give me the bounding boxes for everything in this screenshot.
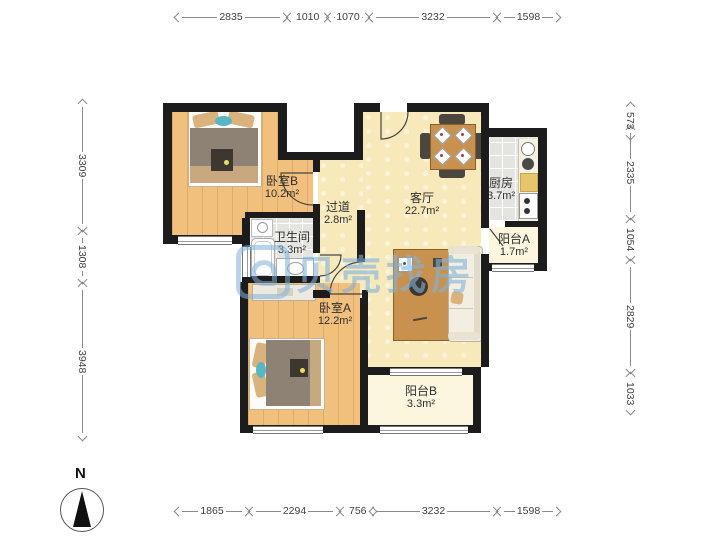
wall [357,210,365,262]
sliding-door [390,368,462,376]
dim-left-0: 3309 [75,100,89,231]
dim-line [308,511,333,512]
wall [407,103,481,112]
arrow-left-icon [174,506,184,516]
dim-bottom-1: 2294 [249,504,340,518]
room-label-living: 客厅 22.7m² [405,191,439,219]
table-item [433,258,442,267]
dim-right-3: 2829 [623,260,637,373]
dim-line [82,179,83,224]
dim-right-4: 1033 [623,373,637,414]
dim-value: 3232 [419,11,446,23]
sofa-pillow [450,291,464,305]
dim-right-0: 573 [623,103,637,126]
arrow-right-icon [552,12,562,22]
dim-bottom-0: 1865 [175,504,249,518]
dim-left-1: 1308 [75,231,89,283]
bedA-bed-foot [310,340,321,406]
stove-burner [524,208,530,214]
arrow-left-icon [496,506,506,516]
dim-line [245,17,280,18]
dim-value: 1010 [294,11,321,23]
arrow-up-icon [625,125,635,135]
wall [163,103,172,244]
arrow-up-icon [625,259,635,269]
room-label-balconyB: 阳台B 3.3m² [405,384,437,412]
dim-bottom-2: 756 [340,504,370,518]
dim-line [447,17,490,18]
room-area: 2.8m² [324,215,352,228]
wall [363,103,380,112]
plate-dot [461,154,464,157]
plate-dot [440,133,443,136]
room-label-balconyA: 阳台A 1.7m² [498,232,530,260]
wall [360,298,368,425]
sink-basin [287,262,304,275]
arrow-up-icon [77,99,87,109]
dim-line [630,330,631,366]
wall [313,204,320,253]
dim-value: 1070 [334,11,361,23]
dim-bottom-4: 1598 [497,504,560,518]
dim-top-3: 3232 [369,10,497,24]
room-area: 3.3m² [278,245,306,258]
room-name: 卫生间 [274,230,310,244]
dim-value: 2335 [624,159,636,186]
wall [240,282,248,433]
dim-bottom-3: 3232 [370,504,497,518]
room-name: 客厅 [410,191,434,205]
dim-value: 1865 [198,505,225,517]
washer-drum [257,222,268,233]
dim-line [256,511,281,512]
arrow-up-icon [77,282,87,292]
bedA-wardrobe-door [277,288,293,296]
room-area: 12.2m² [318,316,352,329]
dim-value: 1308 [76,243,88,270]
wall [505,221,538,227]
dim-top-4: 1598 [497,10,560,24]
table-bowl [409,277,428,296]
room-name: 阳台B [405,384,437,398]
dim-top-2: 1070 [327,10,369,24]
bedA-tray [290,359,308,377]
dim-value: 3948 [76,348,88,375]
sofa-backrest [474,248,480,338]
dim-value: 2294 [281,505,308,517]
bedB-round-pillow [215,116,232,126]
dim-line [377,511,420,512]
wall [313,290,330,298]
dim-value: 3232 [420,505,447,517]
arrow-left-icon [248,506,258,516]
room-area: 3.7m² [487,191,515,204]
wall [242,276,320,283]
room-area: 10.2m² [265,189,299,202]
dim-value: 2835 [217,11,244,23]
arrow-left-icon [369,506,379,516]
wall [481,103,489,228]
dim-line [82,375,83,433]
sofa-armrest [448,332,480,340]
dim-value: 1054 [624,226,636,253]
arrow-left-icon [496,12,506,22]
dim-left-2: 3948 [75,283,89,440]
window [242,247,251,277]
arrow-left-icon [368,12,378,22]
dim-value: 2829 [624,303,636,330]
dim-line [182,17,217,18]
sofa-cushion-line [449,308,473,309]
plate-dot [461,133,464,136]
dim-value: 1033 [624,380,636,407]
sofa-cushion-line [449,277,473,278]
dim-line [82,107,83,152]
bathtub-inner [254,241,272,276]
room-name: 过道 [326,200,350,214]
window [492,264,534,272]
cutting-board [520,173,538,192]
room-name: 厨房 [489,176,513,190]
wall [354,103,363,160]
room-label-bedroomA: 卧室A 12.2m² [318,301,352,329]
kitchen-burner [522,158,534,170]
room-label-kitchen: 厨房 3.7m² [487,176,515,204]
wall [163,103,287,112]
dim-value: 756 [347,505,369,517]
floor-plan: 卧室B 10.2m² 过道 2.8m² 客厅 22.7m² 厨房 3.7m² 阳… [0,0,720,540]
kitchen-sink [521,142,535,156]
arrow-right-icon [552,506,562,516]
window [178,236,232,245]
arrow-down-icon [77,432,87,442]
wall [245,212,320,218]
dim-top-0: 2835 [175,10,287,24]
room-name: 卧室A [319,301,351,315]
compass-north-label: N [75,465,86,482]
wall [538,128,547,271]
dim-right-1: 2335 [623,126,637,219]
wall [313,160,320,172]
window [253,426,323,434]
dim-value: 3309 [76,152,88,179]
dim-line [630,267,631,303]
room-name: 卧室B [266,174,298,188]
bedB-tray-dot [224,160,229,165]
wall [362,290,368,298]
room-area: 3.3m² [407,399,435,412]
dim-value: 1598 [515,11,542,23]
dim-right-2: 1054 [623,219,637,260]
dim-line [82,290,83,348]
room-name: 阳台A [498,232,530,246]
arrow-up-icon [77,230,87,240]
sofa-armrest [448,246,480,254]
room-label-bathroom: 卫生间 3.3m² [274,230,310,258]
arrow-left-icon [174,12,184,22]
room-area: 1.7m² [500,247,528,260]
compass-needle-icon [73,491,91,527]
dim-line [630,133,631,159]
dim-line [447,511,490,512]
dim-top-1: 1010 [287,10,327,24]
room-area: 22.7m² [405,206,439,219]
dim-line [630,186,631,212]
dim-line [376,17,419,18]
stove-burner [524,198,530,204]
dim-line [182,511,198,512]
bedA-tray-dot [300,368,305,373]
plate-dot [440,154,443,157]
dim-value: 1598 [515,505,542,517]
window [380,426,468,434]
bedB-tray [211,149,233,171]
bedA-round-pillow [256,362,266,378]
room-label-bedroomB: 卧室B 10.2m² [265,174,299,202]
room-label-hallway: 过道 2.8m² [324,200,352,228]
stove [519,193,538,219]
bedroomB-floor [172,212,250,235]
arrow-down-icon [625,406,635,416]
wall [278,152,363,160]
table-plate-dot [403,262,406,265]
